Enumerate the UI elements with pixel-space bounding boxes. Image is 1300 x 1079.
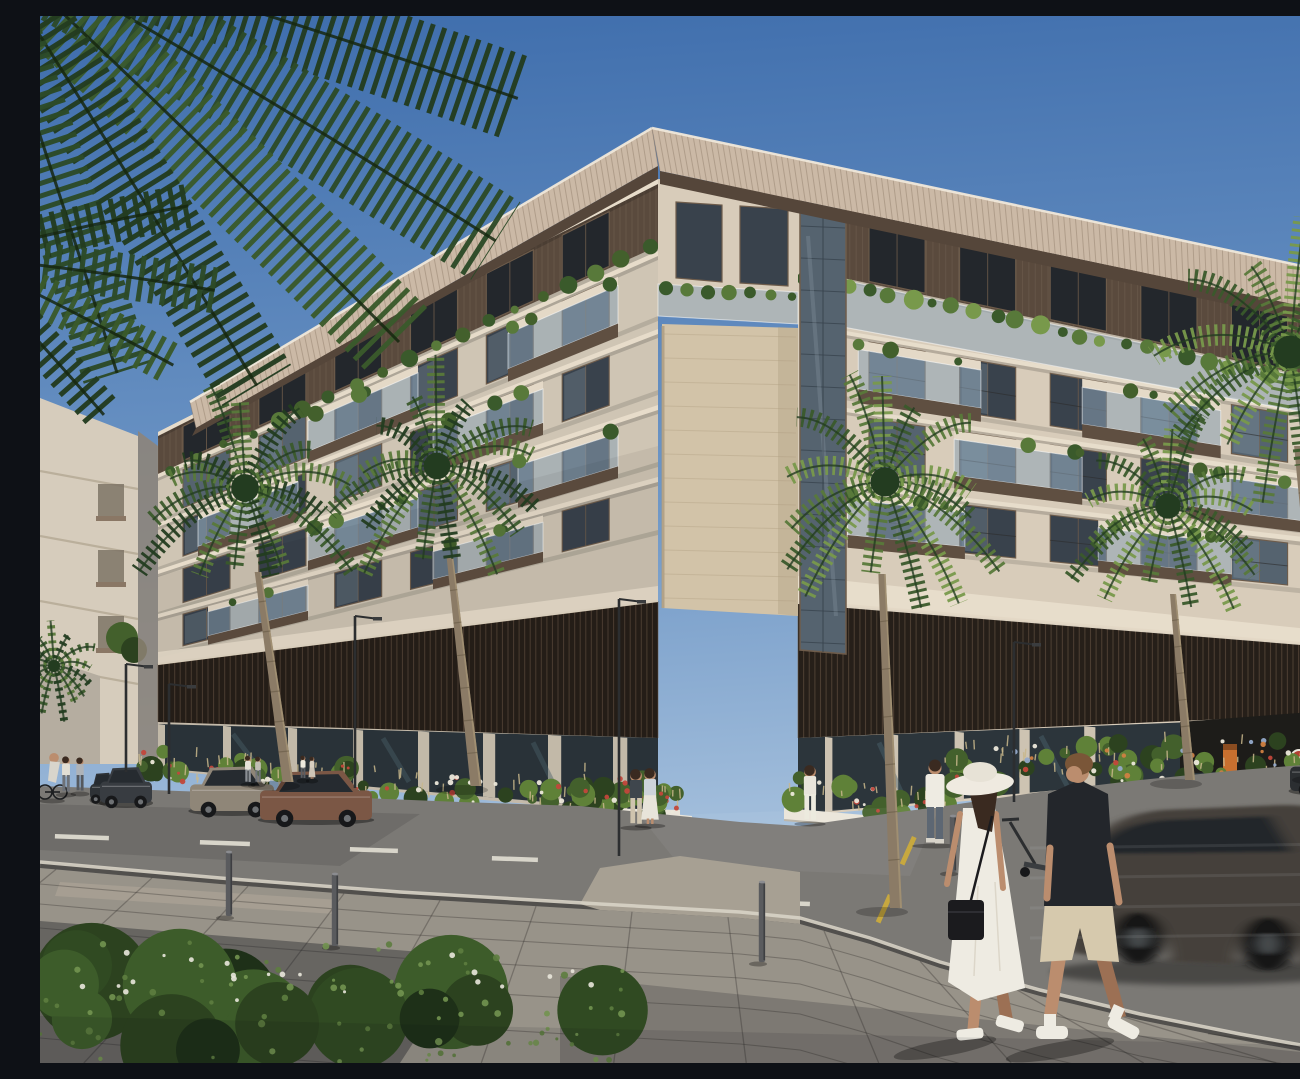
balcony-plant	[1123, 383, 1138, 398]
balcony-plant	[1076, 448, 1085, 457]
background-left	[40, 398, 158, 776]
balcony-plant	[1020, 438, 1035, 453]
balcony-plant	[487, 396, 502, 411]
building-gap	[138, 431, 158, 776]
polo-shirt	[1044, 780, 1115, 906]
balcony-plant	[513, 385, 529, 401]
balcony-plant	[328, 513, 343, 528]
balcony-plant	[603, 277, 617, 291]
handbag	[948, 900, 984, 940]
balcony-plant	[1149, 391, 1157, 399]
window	[676, 202, 722, 282]
lamp-head	[187, 685, 196, 689]
storefront-pier	[825, 737, 832, 813]
lamp-head	[373, 617, 382, 621]
lamp-head	[637, 600, 646, 604]
shirt	[926, 774, 945, 808]
travertine-column	[662, 324, 798, 616]
balcony-plant	[525, 313, 537, 325]
sun-hat-crown	[963, 762, 997, 782]
balcony-plant	[603, 424, 619, 440]
balcony-plant	[853, 339, 865, 351]
sock	[1044, 1014, 1056, 1028]
balcony-plant	[954, 358, 962, 366]
sneaker	[1036, 1026, 1068, 1039]
balcony-plant	[882, 342, 899, 359]
render-canvas	[40, 16, 1300, 1063]
window	[740, 206, 788, 286]
balcony-plant	[506, 321, 519, 334]
balcony-plant	[1278, 476, 1291, 489]
scene-architectural-render	[40, 16, 1300, 1063]
lamp-head	[1032, 643, 1041, 647]
lamp-head	[144, 665, 153, 669]
